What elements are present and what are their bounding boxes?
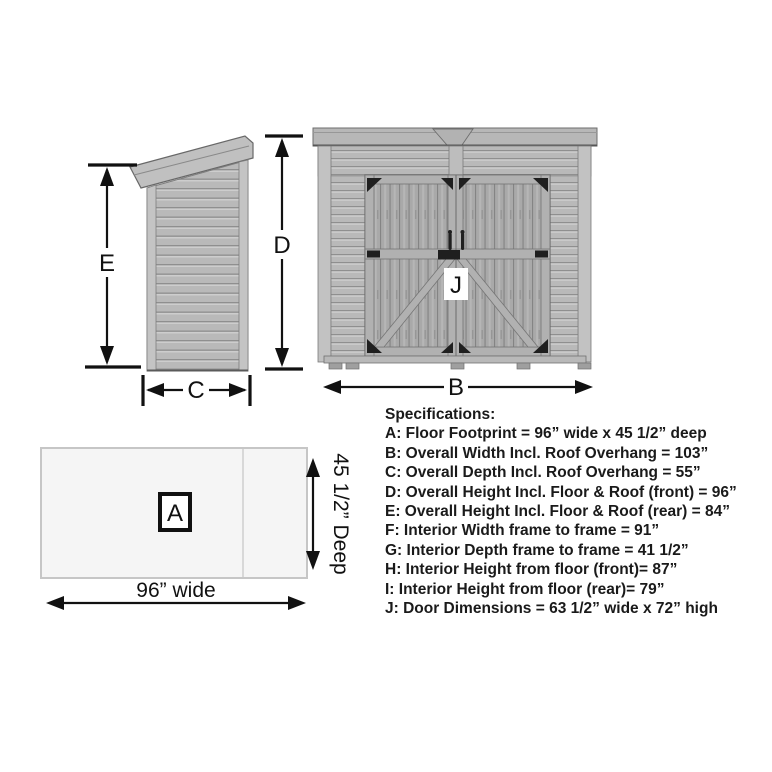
- floor-plan-drawing: A 96” wide 45 1/2” Deep: [28, 438, 373, 628]
- d-arrowhead-up-icon: [275, 138, 289, 157]
- skid-foot: [517, 363, 530, 369]
- d-arrowhead-down-icon: [275, 348, 289, 367]
- front-base-board: [324, 356, 586, 363]
- spec-line-h: H: Interior Height from floor (front)= 8…: [385, 560, 772, 579]
- floor-depth-text: 45 1/2” Deep: [329, 453, 352, 574]
- floor-width-arrowhead-right-icon: [288, 596, 306, 610]
- front-center-trim: [449, 146, 463, 176]
- door-right-stile: [541, 175, 550, 356]
- front-view-drawing: J B: [308, 123, 607, 408]
- dimension-floor-width: 96” wide: [46, 579, 306, 610]
- b-arrowhead-right-icon: [575, 380, 593, 394]
- c-arrowhead-right-icon: [229, 383, 247, 397]
- spec-line-e: E: Overall Height Incl. Floor & Roof (re…: [385, 502, 772, 521]
- dimension-c-depth: C: [143, 375, 250, 406]
- front-skid-feet: [329, 363, 591, 369]
- skid-foot: [329, 363, 342, 369]
- spec-line-g: G: Interior Depth frame to frame = 41 1/…: [385, 541, 772, 560]
- dimension-floor-depth: 45 1/2” Deep: [306, 453, 352, 574]
- floor-depth-arrowhead-down-icon: [306, 551, 320, 570]
- shed-dimension-diagram: E D C: [0, 0, 772, 772]
- spec-line-f: F: Interior Width frame to frame = 91”: [385, 521, 772, 540]
- mid-rail-plate-left-icon: [367, 251, 380, 258]
- c-arrowhead-left-icon: [146, 383, 164, 397]
- dimension-e-rear-height: E: [85, 165, 141, 367]
- b-label: B: [448, 374, 464, 401]
- front-left-siding-panel: [331, 176, 365, 362]
- spec-line-d: D: Overall Height Incl. Floor & Roof (fr…: [385, 483, 772, 502]
- door-handle-left-icon: [449, 233, 452, 250]
- e-arrowhead-down-icon: [100, 346, 114, 365]
- mid-rail-plate-right-icon: [535, 251, 548, 258]
- c-label: C: [187, 377, 204, 404]
- skid-foot: [346, 363, 359, 369]
- skid-foot: [451, 363, 464, 369]
- center-hinge-plate-icon: [438, 250, 460, 260]
- side-wall-siding: [147, 160, 248, 371]
- floor-width-arrowhead-left-icon: [46, 596, 64, 610]
- side-left-corner-trim: [147, 185, 156, 371]
- e-label: E: [99, 250, 115, 277]
- side-view-shed: [130, 136, 253, 371]
- specifications-block: Specifications: A: Floor Footprint = 96”…: [385, 405, 772, 618]
- spec-line-j: J: Door Dimensions = 63 1/2” wide x 72” …: [385, 599, 772, 618]
- d-label: D: [273, 232, 290, 259]
- specifications-heading: Specifications:: [385, 405, 772, 424]
- door-handle-right-icon: [461, 233, 464, 250]
- floor-depth-arrowhead-up-icon: [306, 458, 320, 477]
- front-left-corner-trim: [318, 146, 331, 362]
- front-right-siding-panel: [550, 176, 578, 362]
- spec-line-i: I: Interior Height from floor (rear)= 79…: [385, 580, 772, 599]
- a-label: A: [167, 500, 183, 527]
- side-right-corner-trim: [239, 160, 248, 371]
- front-view-shed: J: [313, 128, 597, 369]
- handle-knob-left-icon: [448, 230, 452, 234]
- double-doors: J: [365, 175, 550, 356]
- dimension-b-overall-width: B: [323, 372, 593, 401]
- floor-width-text: 96” wide: [136, 579, 215, 602]
- front-right-corner-trim: [578, 146, 591, 362]
- side-view-drawing: E D C: [78, 123, 312, 423]
- skid-foot: [578, 363, 591, 369]
- j-label: J: [450, 272, 462, 299]
- b-arrowhead-left-icon: [323, 380, 341, 394]
- handle-knob-right-icon: [461, 230, 465, 234]
- spec-line-c: C: Overall Depth Incl. Roof Overhang = 5…: [385, 463, 772, 482]
- door-left-stile: [365, 175, 374, 356]
- spec-line-a: A: Floor Footprint = 96” wide x 45 1/2” …: [385, 424, 772, 443]
- e-arrowhead-up-icon: [100, 167, 114, 186]
- dimension-d-front-height: D: [265, 136, 303, 369]
- spec-line-b: B: Overall Width Incl. Roof Overhang = 1…: [385, 444, 772, 463]
